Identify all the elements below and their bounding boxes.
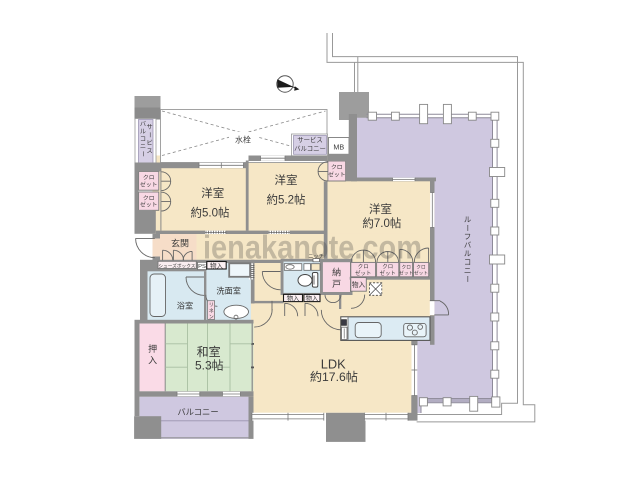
svg-text:サービス: サービス xyxy=(297,135,323,144)
svg-text:押: 押 xyxy=(148,343,157,354)
svg-text:ゼット: ゼット xyxy=(355,269,371,277)
svg-text:クロ: クロ xyxy=(331,164,343,171)
svg-text:ienakanote.com: ienakanote.com xyxy=(203,228,422,265)
svg-text:ー: ー xyxy=(145,132,152,138)
svg-text:ビ: ビ xyxy=(147,139,153,147)
svg-text:クロ: クロ xyxy=(143,195,155,202)
svg-text:浴室: 浴室 xyxy=(177,301,193,311)
svg-text:サ: サ xyxy=(147,124,153,131)
svg-text:洋室: 洋室 xyxy=(201,186,224,200)
svg-text:ニ: ニ xyxy=(140,144,146,151)
svg-text:戸: 戸 xyxy=(332,279,341,289)
svg-text:洋室: 洋室 xyxy=(369,202,392,216)
svg-text:ゼット: ゼット xyxy=(140,180,157,188)
svg-text:シューズボックス: シューズボックス xyxy=(158,263,195,270)
svg-text:ー: ー xyxy=(463,224,472,231)
svg-text:洗面室: 洗面室 xyxy=(216,286,241,296)
svg-text:バルコニー: バルコニー xyxy=(177,407,218,417)
svg-text:納: 納 xyxy=(332,267,341,278)
svg-text:約5.2帖: 約5.2帖 xyxy=(267,192,306,206)
svg-text:ル: ル xyxy=(140,129,146,136)
svg-text:物入: 物入 xyxy=(306,293,319,302)
svg-text:ル: ル xyxy=(464,215,472,224)
svg-text:ゼット: ゼット xyxy=(140,201,157,209)
svg-text:バ: バ xyxy=(140,121,146,128)
svg-text:物入: 物入 xyxy=(352,280,366,289)
svg-text:水栓: 水栓 xyxy=(235,134,251,144)
svg-text:ー: ー xyxy=(463,275,472,282)
svg-text:ゼット: ゼット xyxy=(380,269,396,277)
svg-text:洋室: 洋室 xyxy=(275,173,298,187)
svg-text:和室: 和室 xyxy=(197,344,221,359)
svg-text:物入: 物入 xyxy=(287,293,300,302)
svg-text:ー: ー xyxy=(139,151,146,157)
svg-text:バルコニー: バルコニー xyxy=(294,145,326,153)
svg-text:ゼット: ゼット xyxy=(328,170,345,178)
svg-text:クロ: クロ xyxy=(143,174,155,181)
svg-text:5.3帖: 5.3帖 xyxy=(195,357,224,372)
svg-text:コ: コ xyxy=(140,136,146,143)
svg-text:ス: ス xyxy=(147,148,153,155)
svg-text:ン: ン xyxy=(209,315,214,321)
svg-text:ゼット: ゼット xyxy=(414,269,428,275)
svg-text:約5.0帖: 約5.0帖 xyxy=(191,206,230,220)
svg-text:入: 入 xyxy=(148,356,157,366)
svg-text:MB: MB xyxy=(333,143,344,152)
svg-text:約17.6帖: 約17.6帖 xyxy=(310,369,358,384)
svg-text:玄関: 玄関 xyxy=(171,238,189,249)
svg-text:ニ: ニ xyxy=(464,266,471,275)
svg-text:ゼット: ゼット xyxy=(399,269,413,275)
